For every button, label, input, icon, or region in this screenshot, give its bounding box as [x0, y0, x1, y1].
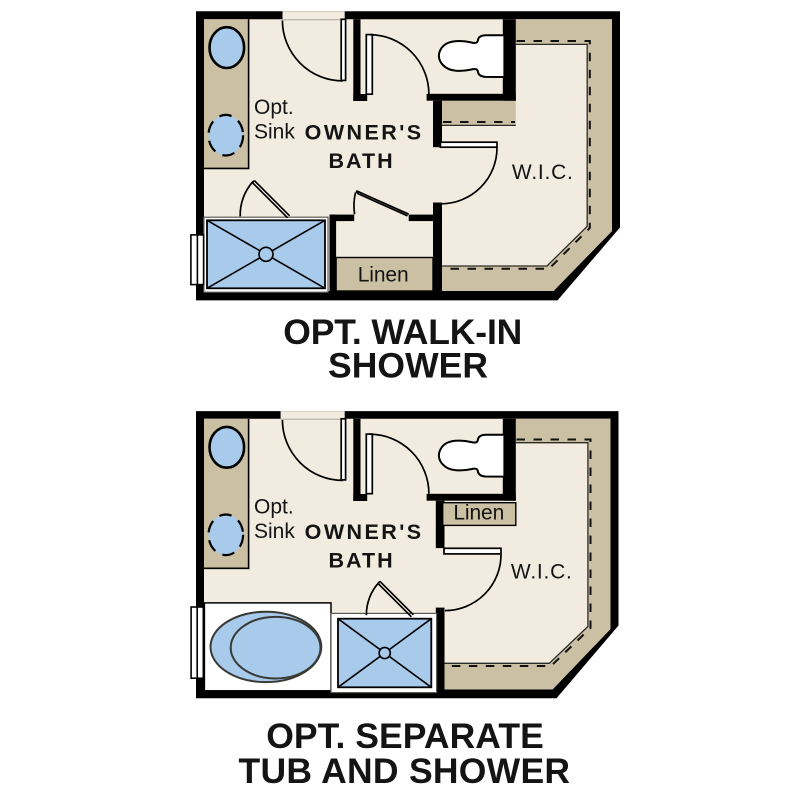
- svg-text:W.I.C.: W.I.C.: [512, 161, 573, 184]
- svg-text:OPT. SEPARATE: OPT. SEPARATE: [266, 716, 544, 756]
- svg-text:Linen: Linen: [358, 263, 409, 286]
- svg-text:Linen: Linen: [453, 501, 504, 524]
- svg-text:SHOWER: SHOWER: [328, 345, 488, 385]
- svg-text:Opt.: Opt.: [254, 96, 294, 119]
- svg-text:TUB AND SHOWER: TUB AND SHOWER: [239, 751, 571, 791]
- svg-text:Sink: Sink: [254, 520, 295, 543]
- svg-text:W.I.C.: W.I.C.: [511, 560, 572, 583]
- svg-text:Opt.: Opt.: [254, 495, 294, 518]
- svg-text:Sink: Sink: [254, 121, 295, 144]
